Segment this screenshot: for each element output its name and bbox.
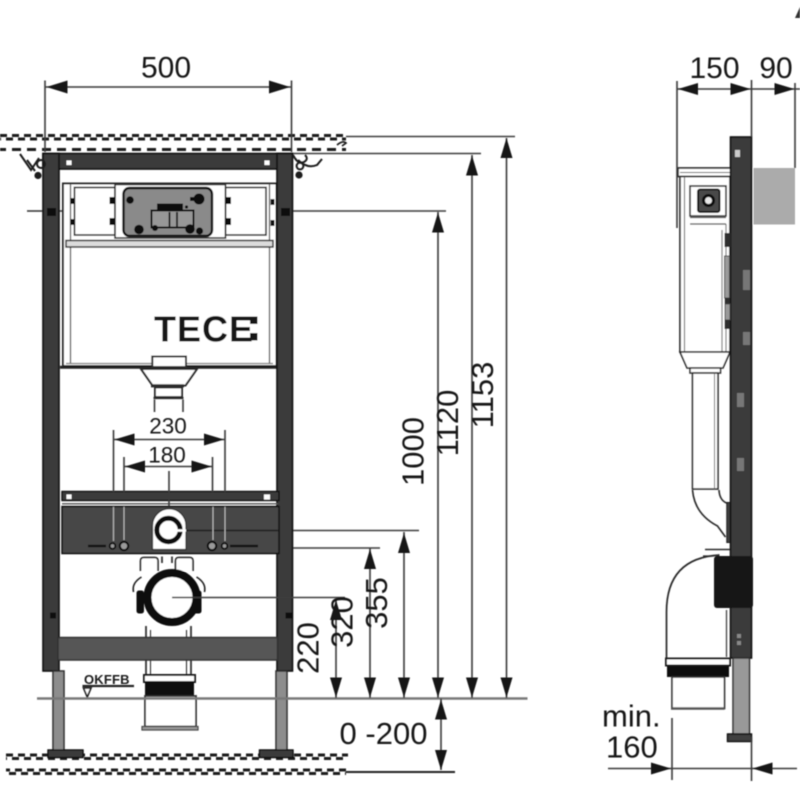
svg-text:500: 500 xyxy=(141,52,191,85)
svg-text:1000: 1000 xyxy=(396,417,431,486)
svg-text:min.: min. xyxy=(602,699,661,734)
svg-text:OKFFB: OKFFB xyxy=(84,672,130,687)
svg-text:180: 180 xyxy=(148,443,186,468)
svg-text:1120: 1120 xyxy=(430,390,465,457)
svg-text:0 -200: 0 -200 xyxy=(340,716,428,751)
svg-text:160: 160 xyxy=(606,730,658,765)
svg-text:150: 150 xyxy=(689,52,739,85)
svg-text:1153: 1153 xyxy=(465,362,500,429)
svg-text:320: 320 xyxy=(325,596,360,648)
svg-text:90: 90 xyxy=(759,52,792,85)
svg-text:TECE: TECE xyxy=(154,309,254,350)
svg-text:220: 220 xyxy=(291,622,326,674)
svg-text:230: 230 xyxy=(149,414,187,439)
svg-text:355: 355 xyxy=(359,577,394,629)
